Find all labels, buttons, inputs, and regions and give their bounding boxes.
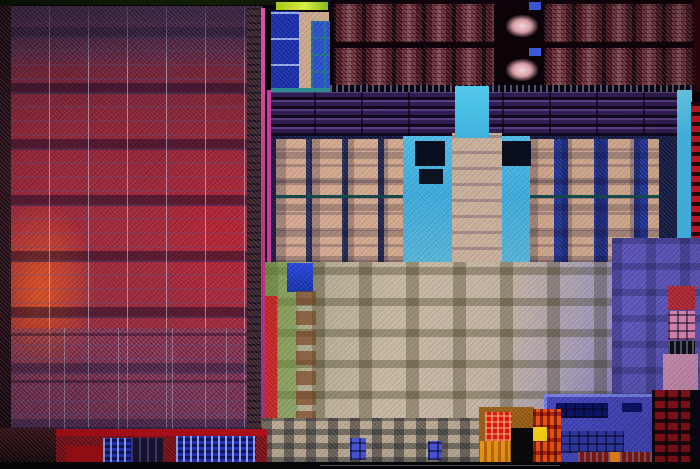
photo-vignette	[0, 0, 700, 469]
die-shot-stage	[0, 0, 700, 469]
die-photo	[0, 0, 700, 469]
